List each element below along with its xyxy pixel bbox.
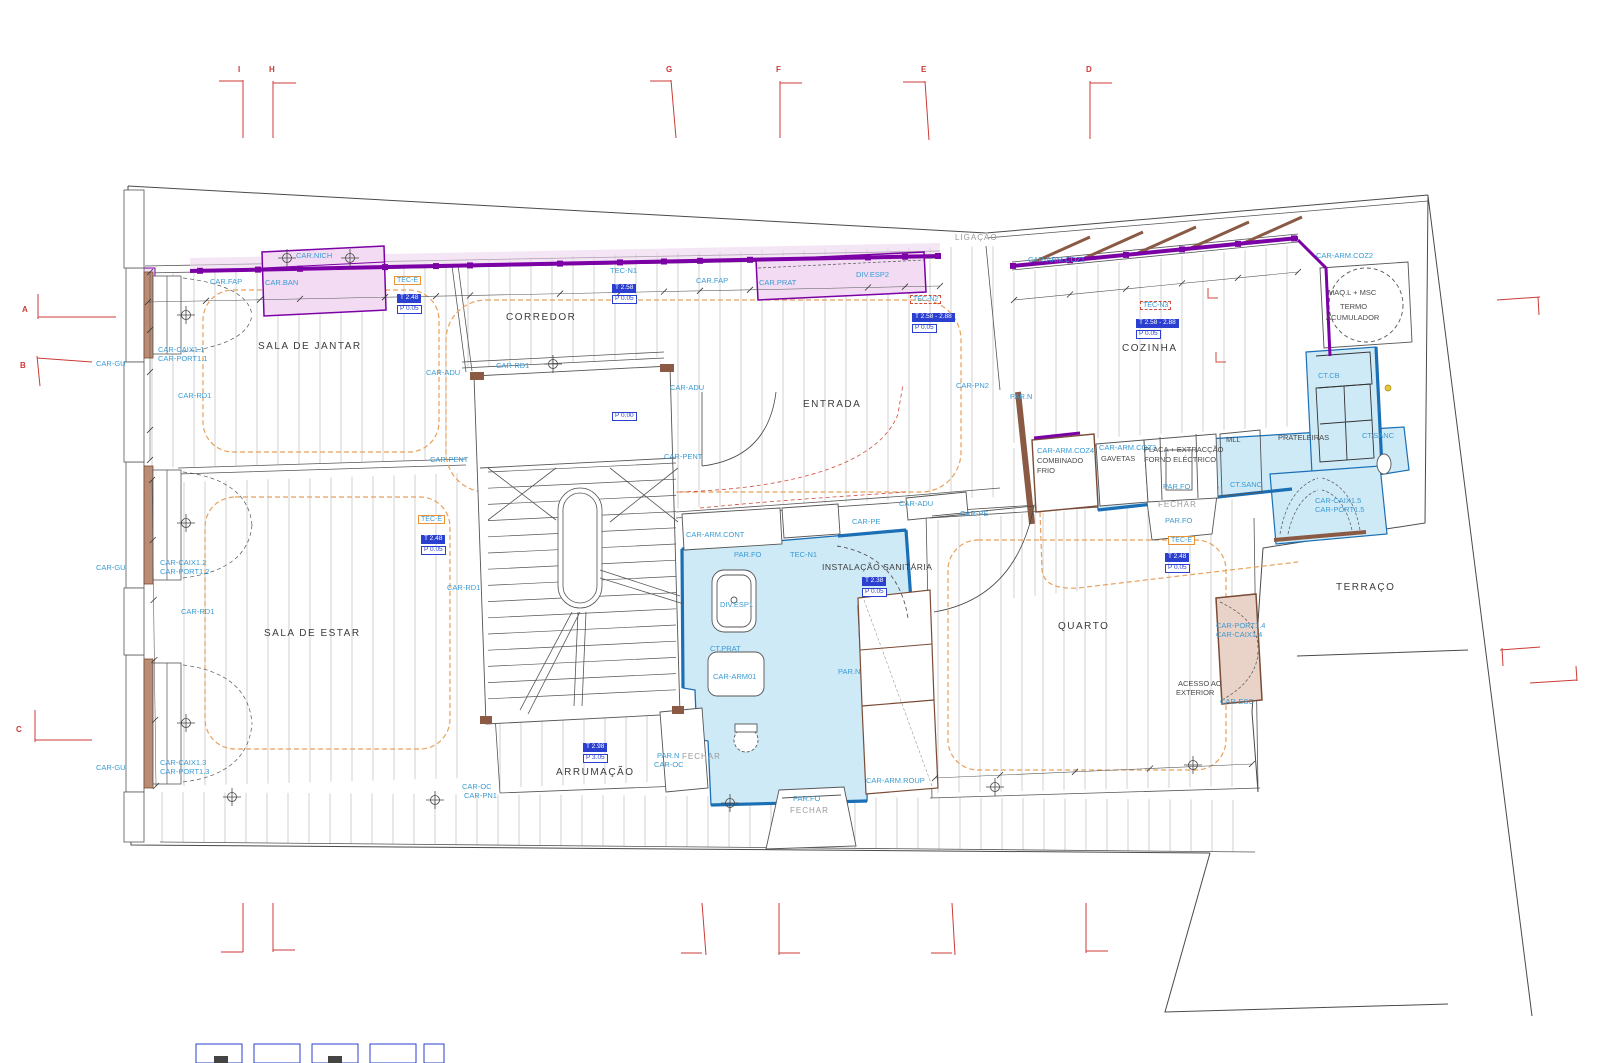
label-t-2-58: T 2.58: [612, 284, 636, 293]
label-car-port1-3: CAR-PORT1.3: [160, 768, 209, 776]
label-p-3-05: P 3.05: [583, 754, 608, 763]
label-maq-l-msc: MAQ.L + MSC: [1328, 289, 1376, 297]
label-p-0-05: P 0.05: [1165, 564, 1190, 573]
label-p-0-05: P 0.05: [421, 546, 446, 555]
label-car-pn2: CAR-PN2: [956, 382, 989, 390]
label-p-0-05: P 0.05: [612, 295, 637, 304]
label-car-port1-4: CAR-PORT1.4: [1216, 622, 1265, 630]
label-tec-e: TEC-E: [1168, 536, 1195, 545]
label-car-arm-coz1: CAR-ARM.COZ1: [1028, 256, 1085, 264]
label-exterior: EXTERIOR: [1176, 689, 1214, 697]
label-t-2-48: T 2.48: [1165, 553, 1189, 562]
label-car-adu: CAR-ADU: [426, 369, 460, 377]
label-t-2-58-2-88: T 2.58 - 2.88: [912, 313, 955, 322]
label-car-pe: CAR-PE: [852, 518, 880, 526]
label-car-rd1: CAR-RD1: [181, 608, 214, 616]
floor-plan: IHGFEDABCCAR.NICHCAR.FAPCAR.BANTEC-ET 2.…: [0, 0, 1600, 1063]
label-ct-prat: CT.PRAT: [710, 645, 741, 653]
grid-marker-c: C: [16, 726, 22, 734]
room-label-entrada: ENTRADA: [803, 400, 861, 410]
label-car-nich: CAR.NICH: [296, 252, 332, 260]
label-car-esc: CAR-ESC: [1220, 698, 1254, 706]
label-car-adu: CAR-ADU: [899, 500, 933, 508]
label-liga-o: LIGAÇÃO: [955, 234, 998, 242]
label-par-fo: PAR.FO: [793, 795, 820, 803]
label-p-0-00: P 0.00: [612, 412, 637, 421]
label-car-rd1: CAR-RD1: [178, 392, 211, 400]
label-car-arm-coz2: CAR-ARM.COZ2: [1316, 252, 1373, 260]
label-car-rd1: CAR-RD1: [447, 584, 480, 592]
grid-marker-g: G: [666, 66, 672, 74]
label-car-fap: CAR.FAP: [210, 278, 242, 286]
label-t-2-38: T 2.38: [862, 577, 886, 586]
room-label-cozinha: COZINHA: [1122, 344, 1178, 354]
label-tec-n2: TEC-N2: [910, 295, 941, 304]
label-tec-n1: TEC-N1: [790, 551, 817, 559]
label-car-caix1-3: CAR-CAIX1.3: [160, 759, 206, 767]
room-label-terra-o: TERRAÇO: [1336, 583, 1395, 593]
room-label-corredor: CORREDOR: [506, 313, 576, 323]
label-car-rd1: CAR-RD1: [496, 362, 529, 370]
room-label-quarto: QUARTO: [1058, 622, 1109, 632]
room-label-arruma-o: ARRUMAÇÃO: [556, 768, 635, 778]
label-placa-extrac-o: PLACA + EXTRACÇÃO: [1144, 446, 1223, 454]
label-forno-el-ctrico: FORNO ELÉCTRICO: [1144, 456, 1216, 464]
label-par-n: PAR.N: [657, 752, 679, 760]
label-gavetas: GAVETAS: [1101, 455, 1135, 463]
label-fechar: FECHAR: [790, 807, 829, 815]
label-frio: FRIO: [1037, 467, 1055, 475]
label-car-oc: CAR-OC: [654, 761, 684, 769]
label-acumulador: ACUMULADOR: [1326, 314, 1379, 322]
label-t-2-48: T 2.48: [421, 535, 445, 544]
label-par-fo: PAR.FO: [734, 551, 761, 559]
label-p-0-05: P 0.05: [862, 588, 887, 597]
label-termo: TERMO: [1340, 303, 1367, 311]
grid-marker-d: D: [1086, 66, 1092, 74]
room-label-sala-de-jantar: SALA DE JANTAR: [258, 342, 362, 352]
label-car-arm-roup: CAR-ARM.ROUP: [866, 777, 925, 785]
label-car-port1-2: CAR-PORT1.2: [160, 568, 209, 576]
label-car-gu: CAR-GU: [96, 360, 126, 368]
label-fechar: FECHAR: [1158, 501, 1197, 509]
annotation-labels: IHGFEDABCCAR.NICHCAR.FAPCAR.BANTEC-ET 2.…: [0, 0, 1600, 1063]
room-label-instala-o-sanit-ria: INSTALAÇÃO SANITÁRIA: [822, 563, 932, 572]
label-t-2-98: T 2.98: [583, 743, 607, 752]
label-car-oc: CAR-OC: [462, 783, 492, 791]
label-prateleiras: PRATELEIRAS: [1278, 434, 1329, 442]
label-ct-cb: CT.CB: [1318, 372, 1340, 380]
label-par-n: PAR.N: [838, 668, 860, 676]
label-fechar: FECHAR: [682, 753, 721, 761]
label-acesso-ao: ACESSO AO: [1178, 680, 1222, 688]
label-car-caix1-4: CAR-CAIX1.4: [1216, 631, 1262, 639]
label-car-caix1-1: CAR-CAIX1.1: [158, 346, 204, 354]
label-t-2-48: T 2.48: [397, 294, 421, 303]
label-ct-sanc: CT.SANC: [1230, 481, 1262, 489]
grid-marker-h: H: [269, 66, 275, 74]
label-tec-n1: TEC-N1: [610, 267, 637, 275]
label-car-gu: CAR-GU: [96, 764, 126, 772]
label-p-0-05: P 0.05: [1136, 330, 1161, 339]
grid-marker-e: E: [921, 66, 926, 74]
room-label-sala-de-estar: SALA DE ESTAR: [264, 629, 361, 639]
label-ct-sanc: CT.SANC: [1362, 432, 1394, 440]
label-car-pent: CAR-PENT: [664, 453, 702, 461]
label-p-0-05: P 0.05: [912, 324, 937, 333]
label-car-arm01: CAR-ARM01: [713, 673, 756, 681]
label-car-pn1: CAR-PN1: [464, 792, 497, 800]
label-car-gu: CAR-GU: [96, 564, 126, 572]
label-car-adu: CAR-ADU: [670, 384, 704, 392]
label-div-esp1: DIV.ESP1: [720, 601, 753, 609]
label-tec-e: TEC-E: [418, 515, 445, 524]
label-par-fo: PAR.FO: [1163, 483, 1190, 491]
label-combinado: COMBINADO: [1037, 457, 1083, 465]
label-car-prat: CAR.PRAT: [759, 279, 796, 287]
label-tec-n3: TEC-N3: [1140, 301, 1171, 310]
label-par-n: PAR.N: [1010, 393, 1032, 401]
label-mll: MLL: [1226, 436, 1241, 444]
label-car-port1-1: CAR-PORT1.1: [158, 355, 207, 363]
label-t-2-58-2-88: T 2.58 - 2.88: [1136, 319, 1179, 328]
label-car-caix1-5: CAR-CAIX1.5: [1315, 497, 1361, 505]
label-car-fap: CAR.FAP: [696, 277, 728, 285]
grid-marker-b: B: [20, 362, 26, 370]
label-car-arm-coz4: CAR-ARM.COZ4: [1037, 447, 1094, 455]
grid-marker-i: I: [238, 66, 240, 74]
label-car-arm-cont: CAR-ARM.CONT: [686, 531, 744, 539]
label-car-caix1-2: CAR-CAIX1.2: [160, 559, 206, 567]
label-car-port1-5: CAR-PORT1.5: [1315, 506, 1364, 514]
label-par-fo: PAR.FO: [1165, 517, 1192, 525]
label-car-pe: CAR-PE: [960, 510, 988, 518]
label-car-ban: CAR.BAN: [265, 279, 298, 287]
grid-marker-a: A: [22, 306, 28, 314]
label-div-esp2: DIV.ESP2: [856, 271, 889, 279]
label-p-0-05: P 0.05: [397, 305, 422, 314]
grid-marker-f: F: [776, 66, 781, 74]
label-car-pent: CAR-PENT: [430, 456, 468, 464]
label-tec-e: TEC-E: [394, 276, 421, 285]
